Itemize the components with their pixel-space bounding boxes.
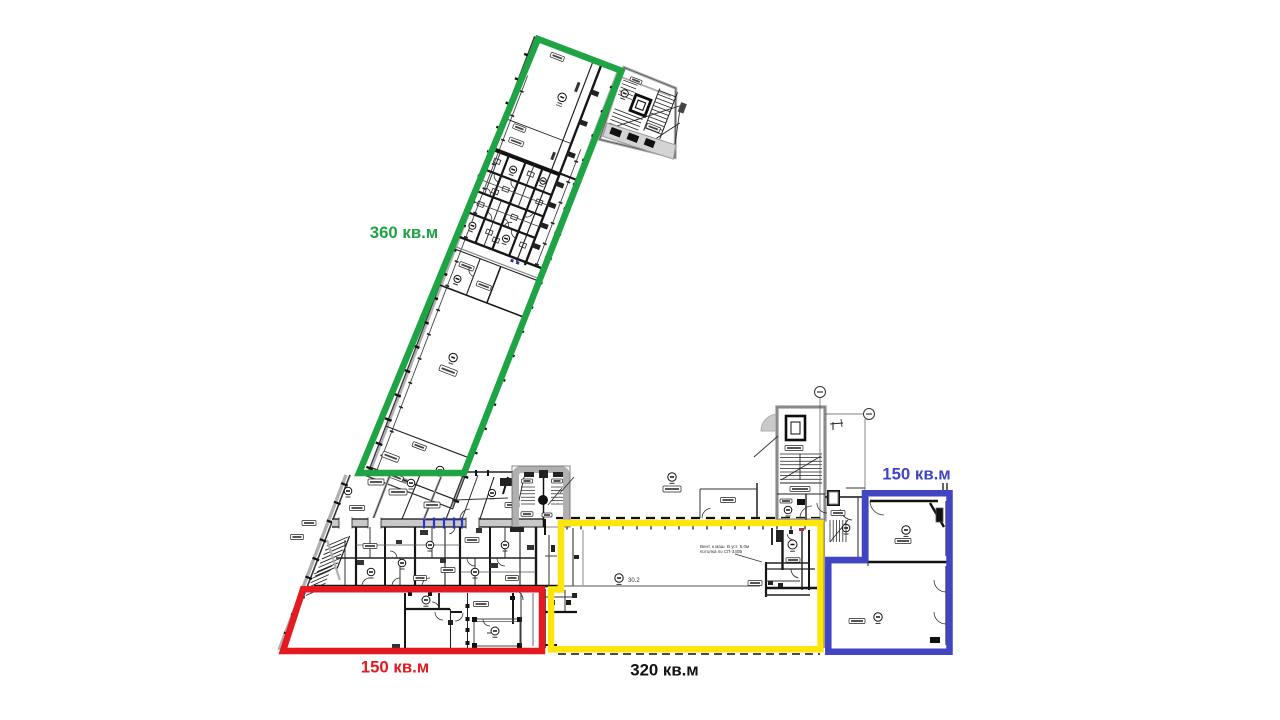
- svg-text:потолка по СП-340Б: потолка по СП-340Б: [700, 549, 742, 554]
- svg-text:150 кв.м: 150 кв.м: [361, 658, 429, 677]
- svg-text:320 кв.м: 320 кв.м: [630, 661, 698, 680]
- svg-text:30.2: 30.2: [628, 578, 640, 584]
- svg-text:360 кв.м: 360 кв.м: [370, 223, 438, 242]
- svg-text:150 кв.м: 150 кв.м: [882, 465, 950, 484]
